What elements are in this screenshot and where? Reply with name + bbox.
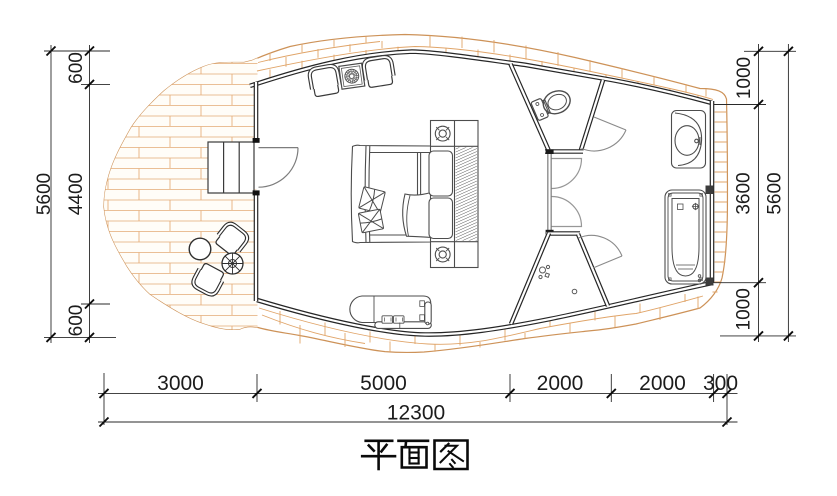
svg-text:5600: 5600 (34, 173, 55, 215)
svg-text:4400: 4400 (66, 173, 87, 215)
svg-text:5000: 5000 (360, 372, 407, 395)
svg-text:5600: 5600 (765, 172, 786, 214)
svg-text:2000: 2000 (639, 372, 686, 395)
svg-text:2000: 2000 (537, 372, 584, 395)
svg-text:3000: 3000 (157, 372, 204, 395)
svg-text:1000: 1000 (734, 288, 755, 330)
svg-text:12300: 12300 (387, 402, 445, 425)
svg-text:600: 600 (66, 52, 87, 84)
svg-text:3600: 3600 (734, 172, 755, 214)
svg-text:300: 300 (703, 372, 738, 395)
svg-text:1000: 1000 (734, 57, 755, 99)
svg-text:600: 600 (66, 305, 87, 337)
